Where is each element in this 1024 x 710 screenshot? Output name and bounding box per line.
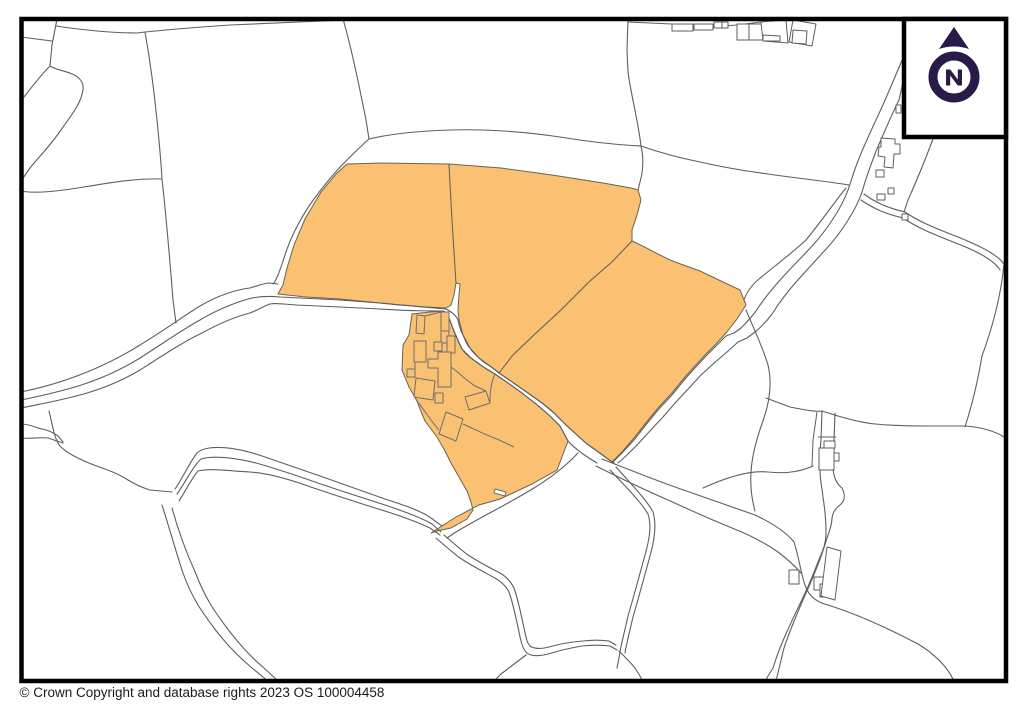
svg-text:© Crown Copyright and database: © Crown Copyright and database rights 20… <box>20 685 385 700</box>
